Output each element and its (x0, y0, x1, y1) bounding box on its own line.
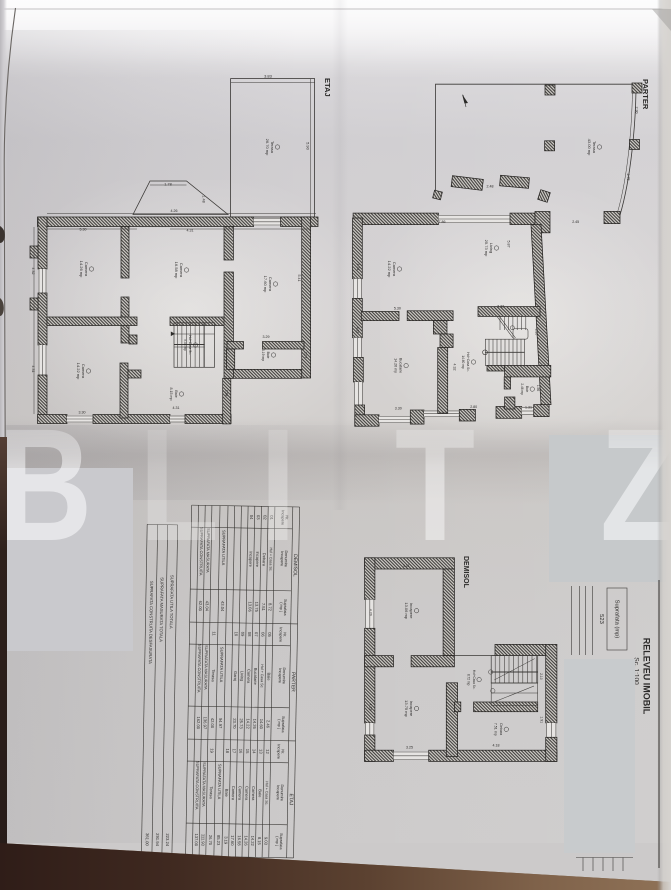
svg-text:136.97: 136.97 (203, 717, 208, 730)
svg-text:3.19: 3.19 (223, 836, 228, 845)
svg-text:94.97: 94.97 (218, 718, 223, 729)
svg-text:361.00: 361.00 (145, 833, 150, 847)
svg-text:Hol+Casa Sc.: Hol+Casa Sc. (472, 670, 476, 690)
svg-text:17: 17 (232, 749, 237, 754)
svg-text:Camera: Camera (251, 786, 256, 801)
svg-text:03: 03 (256, 515, 261, 520)
svg-text:4.23: 4.23 (369, 703, 373, 710)
svg-text:( mp ): ( mp ) (275, 836, 279, 847)
svg-text:14.26 mp: 14.26 mp (393, 358, 397, 373)
svg-text:Incapere: Incapere (280, 510, 284, 525)
svg-text:9.03: 9.03 (264, 837, 269, 846)
svg-text:RELEVEU IMOBIL: RELEVEU IMOBIL (642, 638, 652, 715)
svg-text:16.58: 16.58 (237, 835, 242, 846)
svg-text:4.31: 4.31 (173, 406, 180, 410)
svg-text:ETAJ: ETAJ (323, 78, 332, 97)
svg-text:7.51 mp: 7.51 mp (494, 723, 498, 736)
svg-text:2.10: 2.10 (539, 673, 543, 680)
svg-text:Incapere: Incapere (248, 551, 253, 567)
svg-text:8.72 mp: 8.72 mp (467, 674, 471, 686)
svg-text:16.58 mp: 16.58 mp (174, 262, 179, 279)
svg-text:3.11: 3.11 (403, 564, 410, 568)
svg-text:2.48: 2.48 (487, 184, 494, 188)
svg-text:Incapere: Incapere (276, 744, 280, 759)
svg-text:5.87: 5.87 (507, 241, 511, 248)
svg-text:5.41: 5.41 (297, 275, 301, 282)
svg-text:Camera: Camera (231, 786, 236, 801)
svg-text:2.80: 2.80 (470, 405, 477, 409)
svg-text:SUPRAFATA CONSTRUITA: SUPRAFATA CONSTRUITA (199, 527, 205, 576)
svg-text:13.75: 13.75 (254, 602, 259, 613)
svg-text:14.22: 14.22 (245, 718, 250, 729)
svg-text:4.32: 4.32 (453, 364, 457, 371)
svg-text:Baie: Baie (266, 352, 270, 359)
svg-text:162.00: 162.00 (196, 716, 201, 729)
svg-text:5.90: 5.90 (305, 142, 310, 151)
svg-text:( mp ): ( mp ) (279, 602, 283, 613)
svg-text:SUPRAFATA MASURATA: SUPRAFATA MASURATA (201, 762, 207, 807)
svg-text:2.07: 2.07 (304, 352, 308, 359)
svg-text:223.24: 223.24 (165, 833, 170, 847)
svg-text:3.30: 3.30 (79, 410, 86, 414)
svg-text:06: 06 (260, 632, 265, 637)
svg-text:3.29: 3.29 (263, 335, 270, 339)
svg-text:Hol + Casa Sc.: Hol + Casa Sc. (268, 547, 272, 571)
svg-text:SUPRAFATA MASURATA TOTALA: SUPRAFATA MASURATA TOTALA (159, 577, 165, 642)
svg-text:2.46 mp: 2.46 mp (520, 383, 524, 395)
svg-text:5.30: 5.30 (80, 227, 87, 231)
svg-text:09: 09 (240, 632, 245, 637)
svg-text:291.94: 291.94 (155, 833, 160, 847)
svg-text:SUPRAFATA CONSTRUITA: SUPRAFATA CONSTRUITA (197, 644, 203, 693)
svg-text:2.10: 2.10 (535, 329, 539, 336)
svg-text:13.06: 13.06 (247, 601, 252, 612)
svg-text:15: 15 (245, 749, 250, 754)
svg-text:Incapere: Incapere (278, 627, 282, 642)
svg-text:Debara: Debara (262, 553, 267, 567)
svg-text:07: 07 (254, 632, 259, 637)
svg-text:10: 10 (234, 632, 239, 637)
svg-text:2.30: 2.30 (635, 107, 639, 114)
svg-text:Camera: Camera (246, 669, 251, 684)
svg-text:Sc. 1:100: Sc. 1:100 (632, 657, 639, 685)
svg-text:523: 523 (598, 614, 604, 624)
svg-text:08: 08 (247, 632, 252, 637)
svg-text:2.46: 2.46 (266, 720, 271, 729)
svg-text:Incapere: Incapere (276, 785, 280, 800)
svg-text:14.60 mp: 14.60 mp (461, 355, 465, 369)
svg-text:1.56: 1.56 (536, 385, 540, 392)
svg-text:01: 01 (269, 515, 274, 520)
svg-text:Hol+Casa Sc.: Hol+Casa Sc. (188, 335, 192, 355)
svg-text:Hol + Casa Sc.: Hol + Casa Sc. (260, 664, 264, 688)
svg-text:1.98: 1.98 (225, 390, 229, 397)
svg-text:42.00: 42.00 (210, 718, 215, 729)
svg-text:4.26: 4.26 (171, 209, 178, 213)
svg-text:SUPRAFATA CONSTRUITA: SUPRAFATA CONSTRUITA (194, 761, 200, 810)
svg-text:Baie: Baie (258, 789, 263, 798)
svg-text:14.26 mp: 14.26 mp (79, 261, 84, 278)
svg-text:13: 13 (258, 749, 263, 754)
svg-text:14.22: 14.22 (250, 836, 255, 847)
svg-text:9.03 mp: 9.03 mp (183, 339, 187, 351)
svg-text:85.23: 85.23 (216, 835, 221, 846)
svg-text:5.30: 5.30 (394, 306, 401, 310)
svg-text:3.19 mp: 3.19 mp (261, 349, 265, 361)
svg-text:2.33: 2.33 (497, 304, 504, 308)
svg-text:4.31: 4.31 (187, 228, 194, 232)
svg-text:43.04: 43.04 (205, 601, 210, 612)
svg-text:4.31: 4.31 (356, 264, 360, 271)
svg-text:( mp ): ( mp ) (277, 719, 281, 730)
svg-text:11: 11 (212, 631, 217, 636)
svg-text:Hol + Casa Sc.: Hol + Casa Sc. (264, 781, 268, 805)
svg-text:SUPRAFATA MASURATA: SUPRAFATA MASURATA (203, 645, 209, 690)
svg-text:Camera: Camera (237, 786, 242, 801)
svg-text:18: 18 (225, 748, 230, 753)
svg-text:13.75 mp: 13.75 mp (404, 700, 409, 717)
svg-text:14.26: 14.26 (243, 835, 248, 846)
svg-text:7.51: 7.51 (261, 603, 266, 612)
svg-text:13.06 mp: 13.06 mp (404, 602, 409, 619)
svg-text:Garaj: Garaj (233, 671, 238, 681)
svg-text:4.18: 4.18 (493, 743, 500, 747)
svg-text:25.73 mp: 25.73 mp (484, 240, 489, 257)
svg-text:17.60 mp: 17.60 mp (263, 276, 268, 293)
svg-text:14.60: 14.60 (259, 719, 264, 730)
svg-text:14.22 mp: 14.22 mp (76, 363, 81, 380)
svg-text:Incapere: Incapere (255, 551, 260, 567)
svg-text:Terasa: Terasa (209, 786, 214, 799)
svg-text:43.00 mp: 43.00 mp (587, 139, 592, 156)
svg-text:26.70 mp: 26.70 mp (265, 139, 270, 156)
svg-text:Baie: Baie (174, 390, 178, 397)
svg-text:25.73: 25.73 (239, 718, 244, 729)
svg-text:Incapere: Incapere (280, 551, 284, 566)
svg-text:19: 19 (210, 748, 215, 753)
svg-text:14.22 mp: 14.22 mp (387, 261, 392, 278)
svg-text:ETAJ: ETAJ (288, 793, 294, 805)
svg-text:Living: Living (240, 671, 245, 682)
svg-text:Baie: Baie (525, 386, 529, 393)
svg-text:7.86: 7.86 (439, 220, 446, 224)
svg-text:8.15: 8.15 (257, 837, 262, 846)
svg-text:14: 14 (252, 749, 257, 754)
svg-text:4.32: 4.32 (31, 268, 35, 275)
svg-text:4.32: 4.32 (356, 327, 360, 334)
svg-text:23.70: 23.70 (232, 718, 237, 729)
svg-text:111.93: 111.93 (200, 834, 205, 847)
svg-text:SUPRAFATA MASURATA: SUPRAFATA MASURATA (205, 528, 211, 573)
svg-text:Hol+Casa Sc.: Hol+Casa Sc. (466, 352, 470, 372)
svg-text:SUPRAFATA UTILA TOTALA: SUPRAFATA UTILA TOTALA (169, 575, 175, 629)
svg-text:14.26: 14.26 (252, 719, 257, 730)
svg-text:SUPRAFATA UTILA: SUPRAFATA UTILA (221, 530, 227, 566)
svg-text:Suprafata (mp): Suprafata (mp) (613, 600, 619, 639)
svg-text:8.15 mp: 8.15 mp (169, 388, 173, 401)
svg-text:2.45: 2.45 (572, 220, 579, 224)
svg-text:62.00: 62.00 (198, 601, 203, 612)
svg-text:3.83: 3.83 (264, 74, 273, 79)
svg-text:3.30: 3.30 (395, 406, 402, 410)
svg-text:43.04: 43.04 (220, 601, 225, 612)
svg-text:16: 16 (238, 749, 243, 754)
svg-text:1.91: 1.91 (540, 716, 544, 723)
svg-text:1.31: 1.31 (525, 405, 532, 409)
svg-text:3.25: 3.25 (406, 745, 413, 749)
svg-text:4.20: 4.20 (369, 609, 373, 616)
svg-text:17.60: 17.60 (230, 835, 235, 846)
svg-text:04: 04 (249, 515, 254, 520)
svg-text:137.00: 137.00 (194, 833, 199, 846)
svg-text:12: 12 (265, 749, 270, 754)
svg-text:Terasa: Terasa (211, 669, 216, 682)
svg-text:SUPRAFATA UTILA: SUPRAFATA UTILA (217, 764, 223, 800)
svg-text:Bucatarie: Bucatarie (253, 668, 258, 686)
svg-text:SUPRAFATA UTILA: SUPRAFATA UTILA (219, 647, 225, 683)
svg-text:1.78: 1.78 (164, 183, 171, 187)
svg-text:DEMISOL: DEMISOL (462, 556, 469, 589)
svg-text:2.75: 2.75 (626, 174, 630, 181)
svg-text:05: 05 (267, 632, 272, 637)
svg-text:Baie: Baie (224, 789, 229, 798)
svg-text:4.31: 4.31 (31, 366, 35, 373)
svg-text:1.48: 1.48 (202, 195, 206, 202)
svg-text:02: 02 (262, 515, 267, 520)
svg-text:DEMISOL: DEMISOL (292, 554, 298, 577)
svg-text:SUPRAFATA CONSTRUITA DESFASURA: SUPRAFATA CONSTRUITA DESFASURATA (148, 581, 154, 664)
svg-text:Incapere: Incapere (278, 668, 282, 683)
svg-text:Camera: Camera (244, 786, 249, 801)
svg-text:8.72: 8.72 (268, 603, 273, 612)
svg-text:26.70: 26.70 (208, 835, 213, 846)
svg-text:Baie: Baie (266, 672, 271, 681)
svg-text:PARTER: PARTER (290, 672, 296, 692)
svg-text:Bucatarie: Bucatarie (399, 358, 403, 373)
svg-text:Debara: Debara (499, 723, 503, 735)
